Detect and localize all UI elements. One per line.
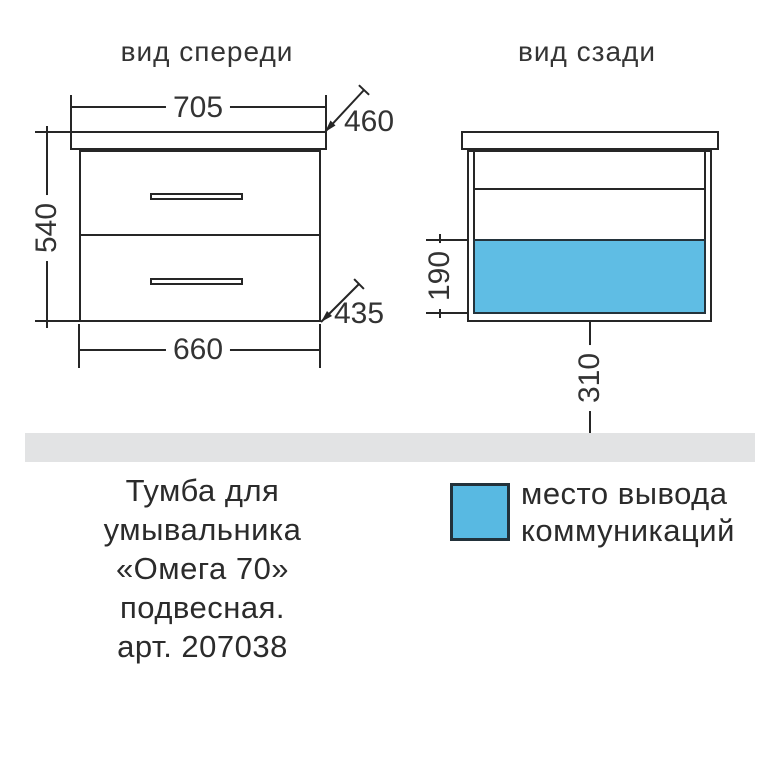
caption-line-1: Тумба для	[45, 471, 360, 510]
rear-dim-190-label: 190	[425, 243, 455, 309]
diagram-canvas: вид спереди 705 540 660 460 435 вид сзад…	[0, 0, 780, 780]
floor-bar	[25, 433, 755, 462]
front-dim-540-ext-top	[35, 131, 70, 133]
front-dim-660-label: 660	[166, 335, 230, 365]
legend-label-line1: место вывода	[521, 475, 735, 512]
front-drawer-divider-line	[81, 234, 319, 236]
front-drawer-handle-top	[150, 193, 243, 200]
rear-countertop	[461, 131, 719, 150]
product-caption: Тумба для умывальника «Омега 70» подвесн…	[45, 471, 360, 666]
front-dim-705-ext-left	[70, 95, 72, 131]
front-dim-660-ext-left	[78, 324, 80, 368]
rear-dim-190-ext-bottom	[426, 312, 467, 314]
caption-line-2: умывальника	[45, 510, 360, 549]
rear-dim-190-ext-top	[426, 239, 467, 241]
front-dim-540-label: 540	[32, 195, 62, 261]
rear-back-rail-line	[475, 188, 704, 190]
front-dim-540-ext-bottom	[35, 320, 79, 322]
front-drawer-handle-bottom	[150, 278, 243, 285]
caption-line-3: «Омега 70»	[45, 549, 360, 588]
rear-view-title: вид сзади	[437, 36, 737, 68]
legend-label-line2: коммуникаций	[521, 512, 735, 549]
front-cabinet-body	[79, 150, 321, 322]
legend-comm-swatch	[450, 483, 510, 541]
caption-line-4: подвесная.	[45, 588, 360, 627]
front-countertop	[70, 131, 327, 150]
legend-label: место вывода коммуникаций	[521, 475, 735, 549]
caption-line-5: арт. 207038	[45, 627, 360, 666]
rear-comm-zone	[473, 239, 706, 314]
front-dim-460-label: 460	[344, 107, 394, 137]
front-view-title: вид спереди	[57, 36, 357, 68]
front-dim-705-label: 705	[166, 93, 230, 123]
rear-dim-310-label: 310	[575, 345, 605, 411]
front-dim-435-label: 435	[334, 299, 384, 329]
